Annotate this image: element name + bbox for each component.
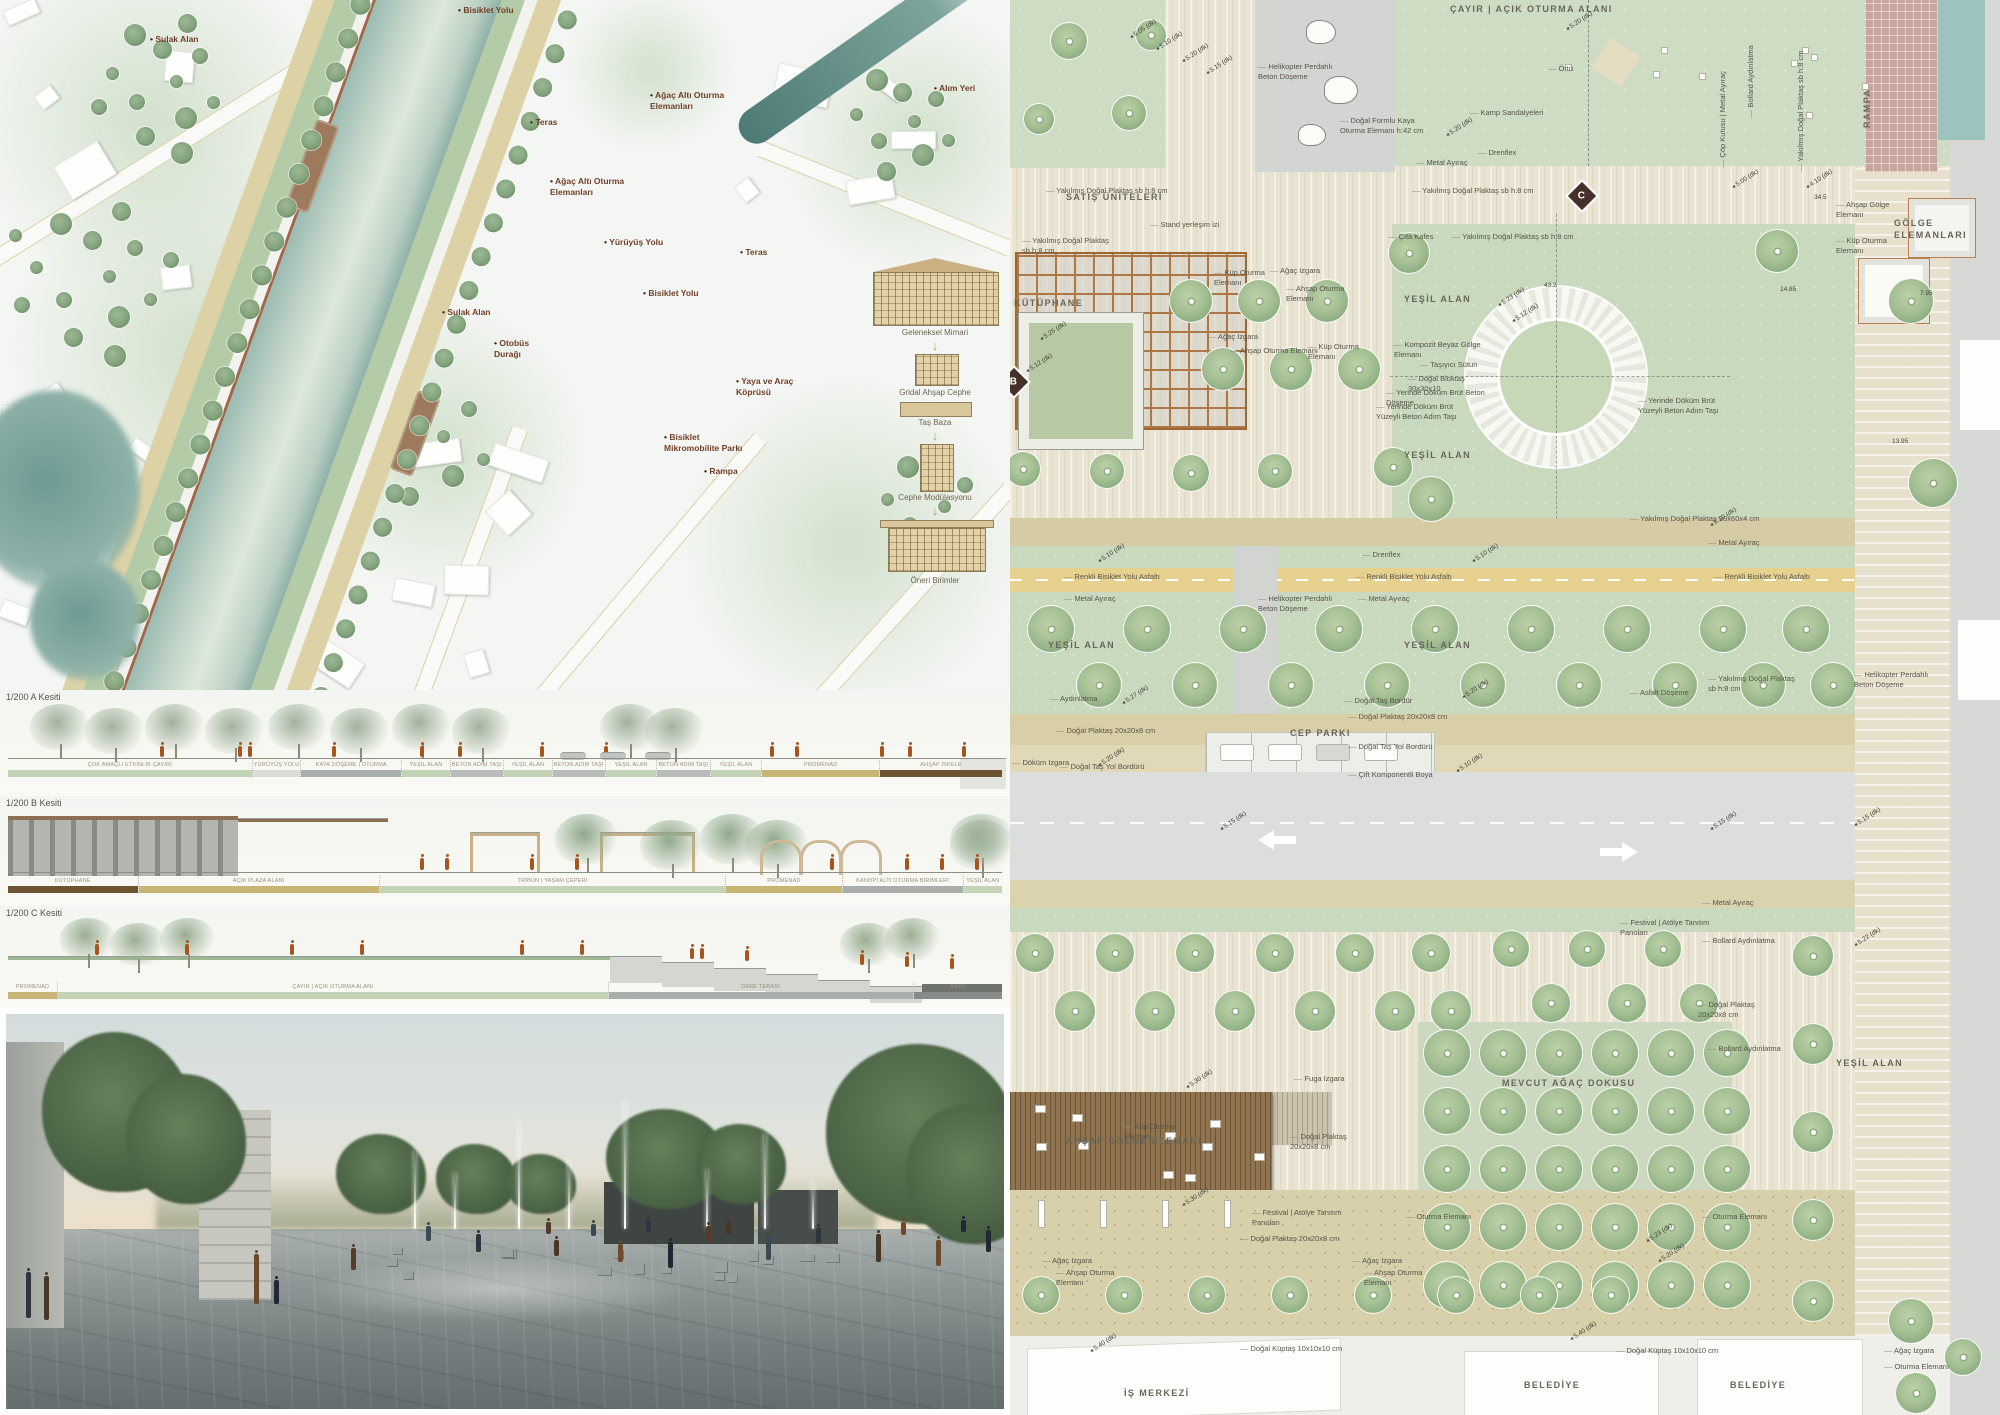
section-segment: KAYA — [913, 982, 1002, 999]
plan-annotation: YEŞİL ALAN — [1404, 640, 1471, 652]
dimension-label: 4.10 (dk) — [1805, 168, 1834, 190]
segment-colorbar — [606, 770, 657, 777]
map-label: Bisiklet Yolu — [458, 5, 514, 16]
building-footprint — [1960, 340, 2000, 430]
plan-annotation: Doğal Küptaş 10x10x10 cm — [1240, 1344, 1342, 1354]
segment-label: ÇOK AMAÇLI ETKİNLİK ÇAYIRI — [8, 760, 252, 770]
map-label: Bisiklet Mikromobilite Parkı — [664, 432, 750, 453]
plan-annotation: Bollard Aydınlatma — [1746, 45, 1756, 118]
plan-annotation: Yerinde Döküm Brüt Yüzeyli Beton Adım Ta… — [1638, 396, 1740, 416]
segment-label: BETON ADIM TAŞI — [451, 760, 503, 770]
plan-annotation: YEŞİL ALAN — [1404, 294, 1471, 306]
panel-bench — [1224, 1200, 1231, 1228]
section-segment: PROMENAD — [8, 982, 57, 999]
green-strip — [1010, 546, 1855, 568]
plan-annotation: Çıta Kafes — [1388, 232, 1433, 242]
traditional-house-roof-icon — [873, 258, 997, 272]
car-icon — [1316, 744, 1350, 761]
segment-label: YEŞİL ALAN — [402, 760, 450, 770]
plan-annotation: Doğal Plaktaş 20x20x8 cm — [1240, 1234, 1339, 1244]
segment-label: AHŞAP İSKELE — [880, 760, 1002, 770]
plan-annotation: Küp Oturma Elemanı — [1308, 342, 1370, 362]
section-segment: PROMENAD — [725, 876, 841, 893]
down-arrow-icon: ↓ — [932, 503, 939, 518]
plan-annotation: CEP PARKI — [1290, 728, 1351, 740]
section-segment: YEŞİL ALAN — [401, 760, 450, 777]
dimension-label: 5.20 (dk) — [1181, 42, 1210, 64]
segment-colorbar — [58, 992, 607, 999]
segment-colorbar — [139, 886, 379, 893]
segment-label: TRİBÜN | YAŞAM ÇEPERİ — [380, 876, 726, 886]
section-a-groundline — [8, 758, 1002, 759]
marker-letter: C — [1578, 190, 1585, 201]
axis-line — [1556, 214, 1557, 534]
legend-caption: Cephe Modülasyonu — [898, 493, 971, 502]
water-feature — [1938, 0, 1985, 140]
proposed-unit-roof-icon — [880, 520, 994, 528]
dimension-label: 7.95 — [1920, 290, 1933, 297]
dimension-label: 5.00 (dk) — [1731, 168, 1760, 190]
segment-label: KÜTÜPHANE — [8, 876, 138, 886]
section-segment: KAYA DÖŞEME | OTURMA — [300, 760, 401, 777]
segment-colorbar — [402, 770, 450, 777]
plan-annotation: Doğal Taş Yol Bordürü — [1348, 742, 1433, 752]
plan-annotation: Helikopter Perdahlı Beton Döşeme — [1258, 594, 1346, 614]
legend-caption: Geleneksel Mimari — [902, 328, 968, 337]
map-label: Otobüs Durağı — [494, 338, 544, 359]
plan-annotation: Oturma Elemanı — [1406, 1212, 1471, 1222]
plan-annotation: Ağaç Izgara — [1352, 1256, 1402, 1266]
building-footprint — [1958, 620, 2000, 700]
segment-colorbar — [8, 992, 57, 999]
plan-annotation: Ağaç Izgara — [1208, 332, 1258, 342]
plan-annotation: Doğal Küptaş 10x10x10 cm — [1616, 1346, 1718, 1356]
presentation-board: { "site_plan": { "labels": [ {"t":"Sulak… — [0, 0, 2000, 1415]
map-label: Yaya ve Araç Köprüsü — [736, 376, 810, 397]
plan-annotation: Yakılmış Doğal Plaktaş sb h:8 cm — [1452, 232, 1573, 242]
plan-annotation: Oturma Elemanı — [1702, 1212, 1767, 1222]
map-label: Ağaç Altı Oturma Elemanları — [650, 90, 730, 111]
plaza-render-image — [0, 1008, 1010, 1415]
segment-colorbar — [301, 770, 401, 777]
plan-annotation: Festival | Atölye Tanıtım Panoları — [1252, 1208, 1364, 1228]
section-segment: YEŞİL ALAN — [605, 760, 657, 777]
section-segment: BETON ADIM TAŞI — [656, 760, 709, 777]
section-b-title: 1/200 B Kesiti — [6, 798, 62, 808]
map-label: Teras — [530, 117, 557, 128]
section-cut-marker: C — [1568, 182, 1596, 210]
section-segment: YEŞİL ALAN — [710, 760, 762, 777]
section-segment: AHŞAP İSKELE — [879, 760, 1002, 777]
plan-annotation: YEŞİL ALAN — [1836, 1058, 1903, 1070]
map-label: Yürüyüş Yolu — [604, 237, 663, 248]
plan-annotation: RAMPA — [1862, 89, 1874, 128]
segment-colorbar — [726, 886, 841, 893]
section-segment: BETON ADIM TAŞI — [450, 760, 503, 777]
segment-colorbar — [553, 770, 605, 777]
boulder — [1298, 124, 1326, 146]
library-building — [1018, 312, 1144, 450]
plan-annotation: Metal Ayıraç — [1708, 538, 1760, 548]
panel-bench — [1100, 1200, 1107, 1228]
plan-annotation: BELEDİYE — [1524, 1380, 1580, 1392]
plan-annotation: Çift Komponentli Boya — [1348, 770, 1433, 780]
section-segment: KÜTÜPHANE — [8, 876, 138, 893]
section-a-title: 1/200 A Kesiti — [6, 692, 61, 702]
car-icon — [1220, 744, 1254, 761]
segment-label: YÜRÜYÜŞ YOLU — [253, 760, 301, 770]
dimension-label: 13.95 — [1892, 438, 1908, 445]
segment-label: AÇIK PLAZA ALANI — [139, 876, 379, 886]
master-plan: BC ÇAYIR | AÇIK OTURMA ALANIHelikopter P… — [1010, 0, 2000, 1415]
map-label: Alım Yeri — [934, 83, 975, 94]
plan-annotation: YEŞİL ALAN — [1404, 450, 1471, 462]
panel-bench — [1162, 1200, 1169, 1228]
plan-annotation: Ağaç Izgara — [1270, 266, 1320, 276]
segment-colorbar — [504, 770, 552, 777]
section-a: 1/200 A Kesiti ÇOK AMAÇLI ETKİNLİK ÇAYIR… — [0, 690, 1010, 796]
segment-label: YEŞİL ALAN — [504, 760, 552, 770]
plan-annotation: Festival | Atölye Tanıtım Panoları — [1620, 918, 1722, 938]
section-segment: BETON ADIM TAŞI — [552, 760, 605, 777]
section-segment: KANOPİ ALTI OTURMA BİRİMLERİ — [842, 876, 963, 893]
plan-annotation: Asfalt Döşeme — [1630, 688, 1689, 698]
down-arrow-icon: ↓ — [932, 428, 939, 443]
plan-annotation: Ağaç Izgara — [1884, 1346, 1934, 1356]
dimension-label: 5.30 (dk) — [1185, 1068, 1214, 1090]
segment-label: BETON ADIM TAŞI — [553, 760, 605, 770]
plan-annotation: Yakılmış Doğal Plaktaş sb h:8 cm — [1412, 186, 1533, 196]
plan-annotation: Yakılmış Doğal Plaktaş 30x60x4 cm — [1630, 514, 1759, 524]
segment-colorbar — [964, 886, 1002, 893]
plan-annotation: Metal Ayıraç — [1416, 158, 1468, 168]
plan-annotation: YEŞİL ALAN — [1048, 640, 1115, 652]
plan-annotation: Kompozit Beyaz Gölge Elemanı — [1394, 340, 1486, 360]
legend-caption: Gridal Ahşap Cephe — [899, 388, 971, 397]
plan-annotation: Doğal Plaktaş 20x20x8 cm — [1056, 726, 1155, 736]
section-a-legend-bar: ÇOK AMAÇLI ETKİNLİK ÇAYIRIYÜRÜYÜŞ YOLUKA… — [8, 760, 1002, 777]
dimension-label: 5.15 (dk) — [1205, 54, 1234, 76]
east-promenade — [1855, 168, 1950, 1336]
segment-label: YEŞİL ALAN — [606, 760, 657, 770]
plan-annotation: Ahşap Oturma Elemanı — [1364, 1268, 1436, 1288]
plan-annotation: Yerinde Döküm Brüt Yüzeyli Beton Adım Ta… — [1376, 402, 1478, 422]
segment-colorbar — [8, 770, 252, 777]
stone-base-icon — [900, 402, 972, 417]
plan-annotation: BELEDİYE — [1730, 1380, 1786, 1392]
segment-label: PROMENAD — [726, 876, 841, 886]
plan-annotation: Ahşap Gölge Elemanı — [1836, 200, 1900, 220]
plan-annotation: Küp Oturma Elemanı — [1214, 268, 1276, 288]
map-label: Sulak Alan — [442, 307, 491, 318]
down-arrow-icon: ↓ — [932, 338, 939, 353]
plan-annotation: Bollard Aydınlatma — [1708, 1044, 1781, 1054]
segment-colorbar — [762, 770, 879, 777]
marker-letter: B — [1010, 376, 1017, 387]
section-segment: YÜRÜYÜŞ YOLU — [252, 760, 301, 777]
segment-colorbar — [451, 770, 503, 777]
segment-label: YEŞİL ALAN — [964, 876, 1002, 886]
asphalt-road — [1010, 772, 1950, 880]
segment-label: YEŞİL ALAN — [711, 760, 762, 770]
site-plan-map: Sulak AlanBisiklet YoluAğaç Altı Oturma … — [0, 0, 1010, 690]
road-centerline — [1010, 822, 1950, 824]
plan-annotation: Doğal Plaktaş 20x20x8 cm — [1348, 712, 1447, 722]
legend-caption: Öneri Birimler — [911, 576, 960, 585]
dashed-boundary — [1588, 0, 1589, 166]
plan-annotation: Metal Ayıraç — [1064, 594, 1116, 604]
segment-colorbar — [711, 770, 762, 777]
building-footprint — [1698, 1340, 1862, 1415]
section-segment: DERE TERASI — [608, 982, 913, 999]
section-segment: YEŞİL ALAN — [963, 876, 1002, 893]
section-b: 1/200 B Kesiti KÜTÜPHANEAÇIK PLAZA ALANI… — [0, 796, 1010, 906]
plan-annotation: Doğal Plaktaş 20x20x8 cm — [1290, 1132, 1372, 1152]
plan-annotation: Kamp Sandalyeleri — [1470, 108, 1543, 118]
plan-annotation: Oturma Elemanı — [1884, 1362, 1949, 1372]
map-label: Bisiklet Yolu — [643, 288, 699, 299]
green-strip — [1010, 908, 1855, 932]
plan-annotation: SATIŞ ÜNİTELERİ — [1066, 192, 1163, 204]
plan-annotation: Çöp Kutusu | Metal Ayıraç — [1718, 71, 1728, 168]
segment-colorbar — [8, 886, 138, 893]
section-segment: ÇOK AMAÇLI ETKİNLİK ÇAYIRI — [8, 760, 252, 777]
section-segment: TRİBÜN | YAŞAM ÇEPERİ — [379, 876, 726, 893]
plan-annotation: Ahşap Oturma Elemanı — [1056, 1268, 1128, 1288]
plan-annotation: MEVCUT AĞAÇ DOKUSU — [1502, 1078, 1635, 1090]
dimension-label: 43.2 — [1544, 282, 1557, 289]
segment-colorbar — [380, 886, 726, 893]
wetland — [30, 560, 140, 680]
plan-annotation: Helikopter Perdahlı Beton Döşeme — [1258, 62, 1340, 82]
plan-annotation: Drenflex — [1478, 148, 1516, 158]
plan-annotation: Doğal Taş Bordür — [1344, 696, 1412, 706]
plan-annotation: Örtü — [1548, 64, 1573, 74]
traditional-house-icon — [873, 272, 999, 326]
section-b-legend-bar: KÜTÜPHANEAÇIK PLAZA ALANITRİBÜN | YAŞAM … — [8, 876, 1002, 893]
panel-bench — [1038, 1200, 1045, 1228]
plan-annotation: Doğal Plaktaş 20x20x8 cm — [1698, 1000, 1782, 1020]
segment-label: PROMENAD — [8, 982, 57, 992]
plan-annotation: Renkli Bisiklet Yolu Asfaltı — [1714, 572, 1810, 582]
plan-annotation: Drenflex — [1362, 550, 1400, 560]
segment-colorbar — [657, 770, 709, 777]
plan-annotation: AHŞAP GÖLGE ELEMANI — [1066, 1136, 1202, 1148]
dimension-label: 34.5 — [1814, 194, 1827, 201]
road-arrow-left-icon — [1248, 830, 1274, 850]
section-segment: AÇIK PLAZA ALANI — [138, 876, 379, 893]
dimension-label: 14.85 — [1780, 286, 1796, 293]
plan-annotation: İŞ MERKEZİ — [1124, 1388, 1190, 1400]
segment-label: ÇAYIR | AÇIK OTURMA ALANI — [58, 982, 607, 992]
segment-colorbar — [609, 992, 913, 999]
plan-annotation: Yakılmış Doğal Plaktaş sb h:8 cm — [1022, 236, 1114, 256]
section-c: 1/200 C Kesiti PROMENADÇAYIR | AÇIK OTUR… — [0, 906, 1010, 1008]
segment-label: PROMENAD — [762, 760, 879, 770]
section-c-title: 1/200 C Kesiti — [6, 908, 62, 918]
segment-label: KANOPİ ALTI OTURMA BİRİMLERİ — [843, 876, 963, 886]
plan-annotation: Stand yerleşim izi — [1150, 220, 1219, 230]
proposed-unit-icon — [888, 528, 986, 572]
segment-colorbar — [843, 886, 963, 893]
plan-annotation: Metal Ayıraç — [1358, 594, 1410, 604]
map-label: Ağaç Altı Oturma Elemanları — [550, 176, 630, 197]
plan-annotation: GÖLGE ELEMANLARI — [1894, 218, 1966, 241]
plan-annotation: Aydınlatma — [1050, 694, 1097, 704]
car-icon — [1268, 744, 1302, 761]
map-label: Sulak Alan — [150, 34, 199, 45]
plaktas-band — [1010, 518, 1950, 546]
ramp — [1865, 0, 1938, 172]
section-b-groundline — [8, 872, 1002, 873]
plan-annotation: Taşıyıcı Sütun — [1420, 360, 1477, 370]
plan-annotation: Ahşap Oturma Elemanı — [1286, 284, 1358, 304]
segment-label: KAYA — [914, 982, 1002, 992]
plan-annotation: Yakılmış Doğal Plaktaş sb h:8 cm — [1796, 51, 1806, 172]
plan-annotation: Ağaç Izgara — [1042, 1256, 1092, 1266]
plan-annotation: Fuga Izgara — [1294, 1074, 1344, 1084]
map-label: Teras — [740, 247, 767, 258]
section-c-legend-bar: PROMENADÇAYIR | AÇIK OTURMA ALANIDERE TE… — [8, 982, 1002, 999]
section-segment: ÇAYIR | AÇIK OTURMA ALANI — [57, 982, 607, 999]
plan-annotation: Küp Oturma Elemanı — [1836, 236, 1900, 256]
segment-label: KAYA DÖŞEME | OTURMA — [301, 760, 401, 770]
plan-annotation: Yakılmış Doğal Plaktaş sb h:8 cm — [1708, 674, 1804, 694]
plan-annotation: Helikopter Perdahlı Beton Döşeme — [1854, 670, 1936, 690]
plan-annotation: KÜTÜPHANE — [1014, 298, 1083, 310]
grid-facade-icon — [915, 354, 959, 386]
road-arrow-right-icon — [1622, 842, 1648, 862]
section-segment: PROMENAD — [761, 760, 879, 777]
segment-label: DERE TERASI — [609, 982, 913, 992]
segment-colorbar — [253, 770, 301, 777]
legend-caption: Taş Baza — [919, 418, 952, 427]
plan-annotation: Metal Ayıraç — [1702, 898, 1754, 908]
segment-colorbar — [880, 770, 1002, 777]
plan-annotation: Renkli Bisiklet Yolu Asfaltı — [1064, 572, 1160, 582]
segment-colorbar — [914, 992, 1002, 999]
facade-module-icon — [920, 444, 954, 492]
map-label: Rampa — [704, 466, 738, 477]
plan-annotation: Doğal Formlu Kaya Oturma Elemanı h:42 cm — [1340, 116, 1438, 136]
plan-annotation: Döküm Izgara — [1012, 758, 1069, 768]
segment-label: BETON ADIM TAŞI — [657, 760, 709, 770]
boulder — [1306, 20, 1336, 44]
plan-annotation: Renkli Bisiklet Yolu Asfaltı — [1356, 572, 1452, 582]
section-segment: YEŞİL ALAN — [503, 760, 552, 777]
